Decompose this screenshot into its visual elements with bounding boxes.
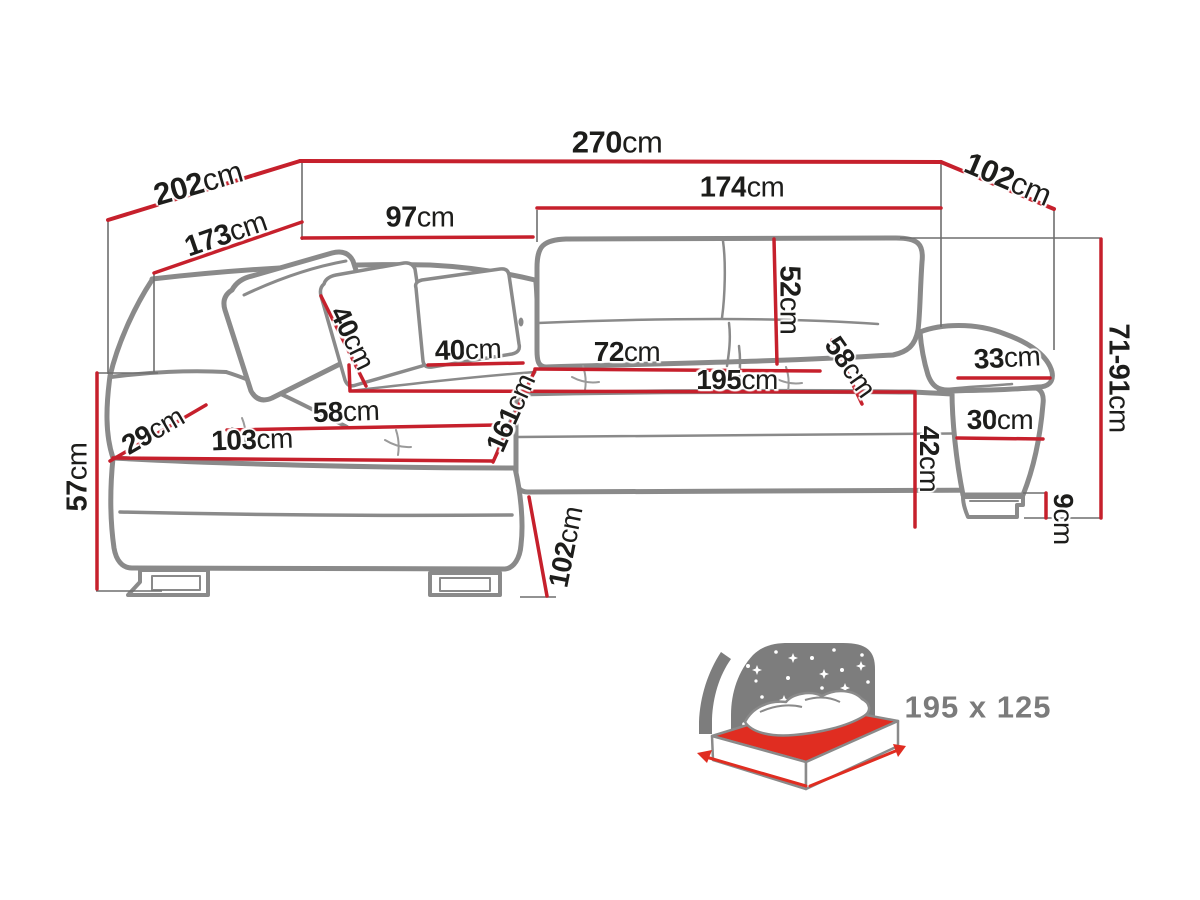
dim-label-backrest-height: 52cm (775, 266, 804, 335)
dimension-line-30 (957, 438, 1043, 439)
dimension-line-270 (300, 161, 941, 162)
seat-front-right-section (516, 391, 1025, 492)
dim-label-sofa-length: 174cm (700, 174, 785, 203)
arrow-length-head (697, 750, 712, 763)
dim-label-corner-width: 97cm (386, 204, 455, 233)
dim-label-chaise-front-width: 103cm (211, 425, 293, 456)
sleeping-function-icon (697, 643, 906, 789)
dim-label-foot-height: 9cm (1049, 493, 1077, 544)
chaise-arm-top-seam (111, 371, 226, 377)
dim-label-pillow-right: 40cm (434, 335, 501, 365)
moon-icon (699, 652, 731, 734)
dim-label-sleeping-length: 195cm (696, 366, 778, 394)
sofa-dimension-diagram: 270cm 202cm 102cm 173cm 97cm 174cm 52cm … (0, 0, 1200, 900)
dim-label-chaise-seat-width: 58cm (312, 397, 379, 427)
dim-label-overall-width: 270cm (572, 127, 663, 158)
dim-label-armrest-base-width: 30cm (967, 406, 1033, 434)
dim-label-seat-depth: 72cm (594, 338, 660, 366)
dim-label-seat-height: 42cm (915, 426, 943, 492)
dim-label-front-height: 57cm (64, 443, 93, 512)
dim-label-armrest-top-width: 33cm (973, 342, 1041, 373)
chaise-back-corner-edge (535, 280, 537, 345)
dimension-line-97 (302, 237, 533, 238)
dim-label-total-height-range: 71-91cm (1104, 323, 1133, 432)
sleeping-area-size-label: 195 x 125 (905, 692, 1052, 723)
back-tuft-button (519, 318, 524, 327)
